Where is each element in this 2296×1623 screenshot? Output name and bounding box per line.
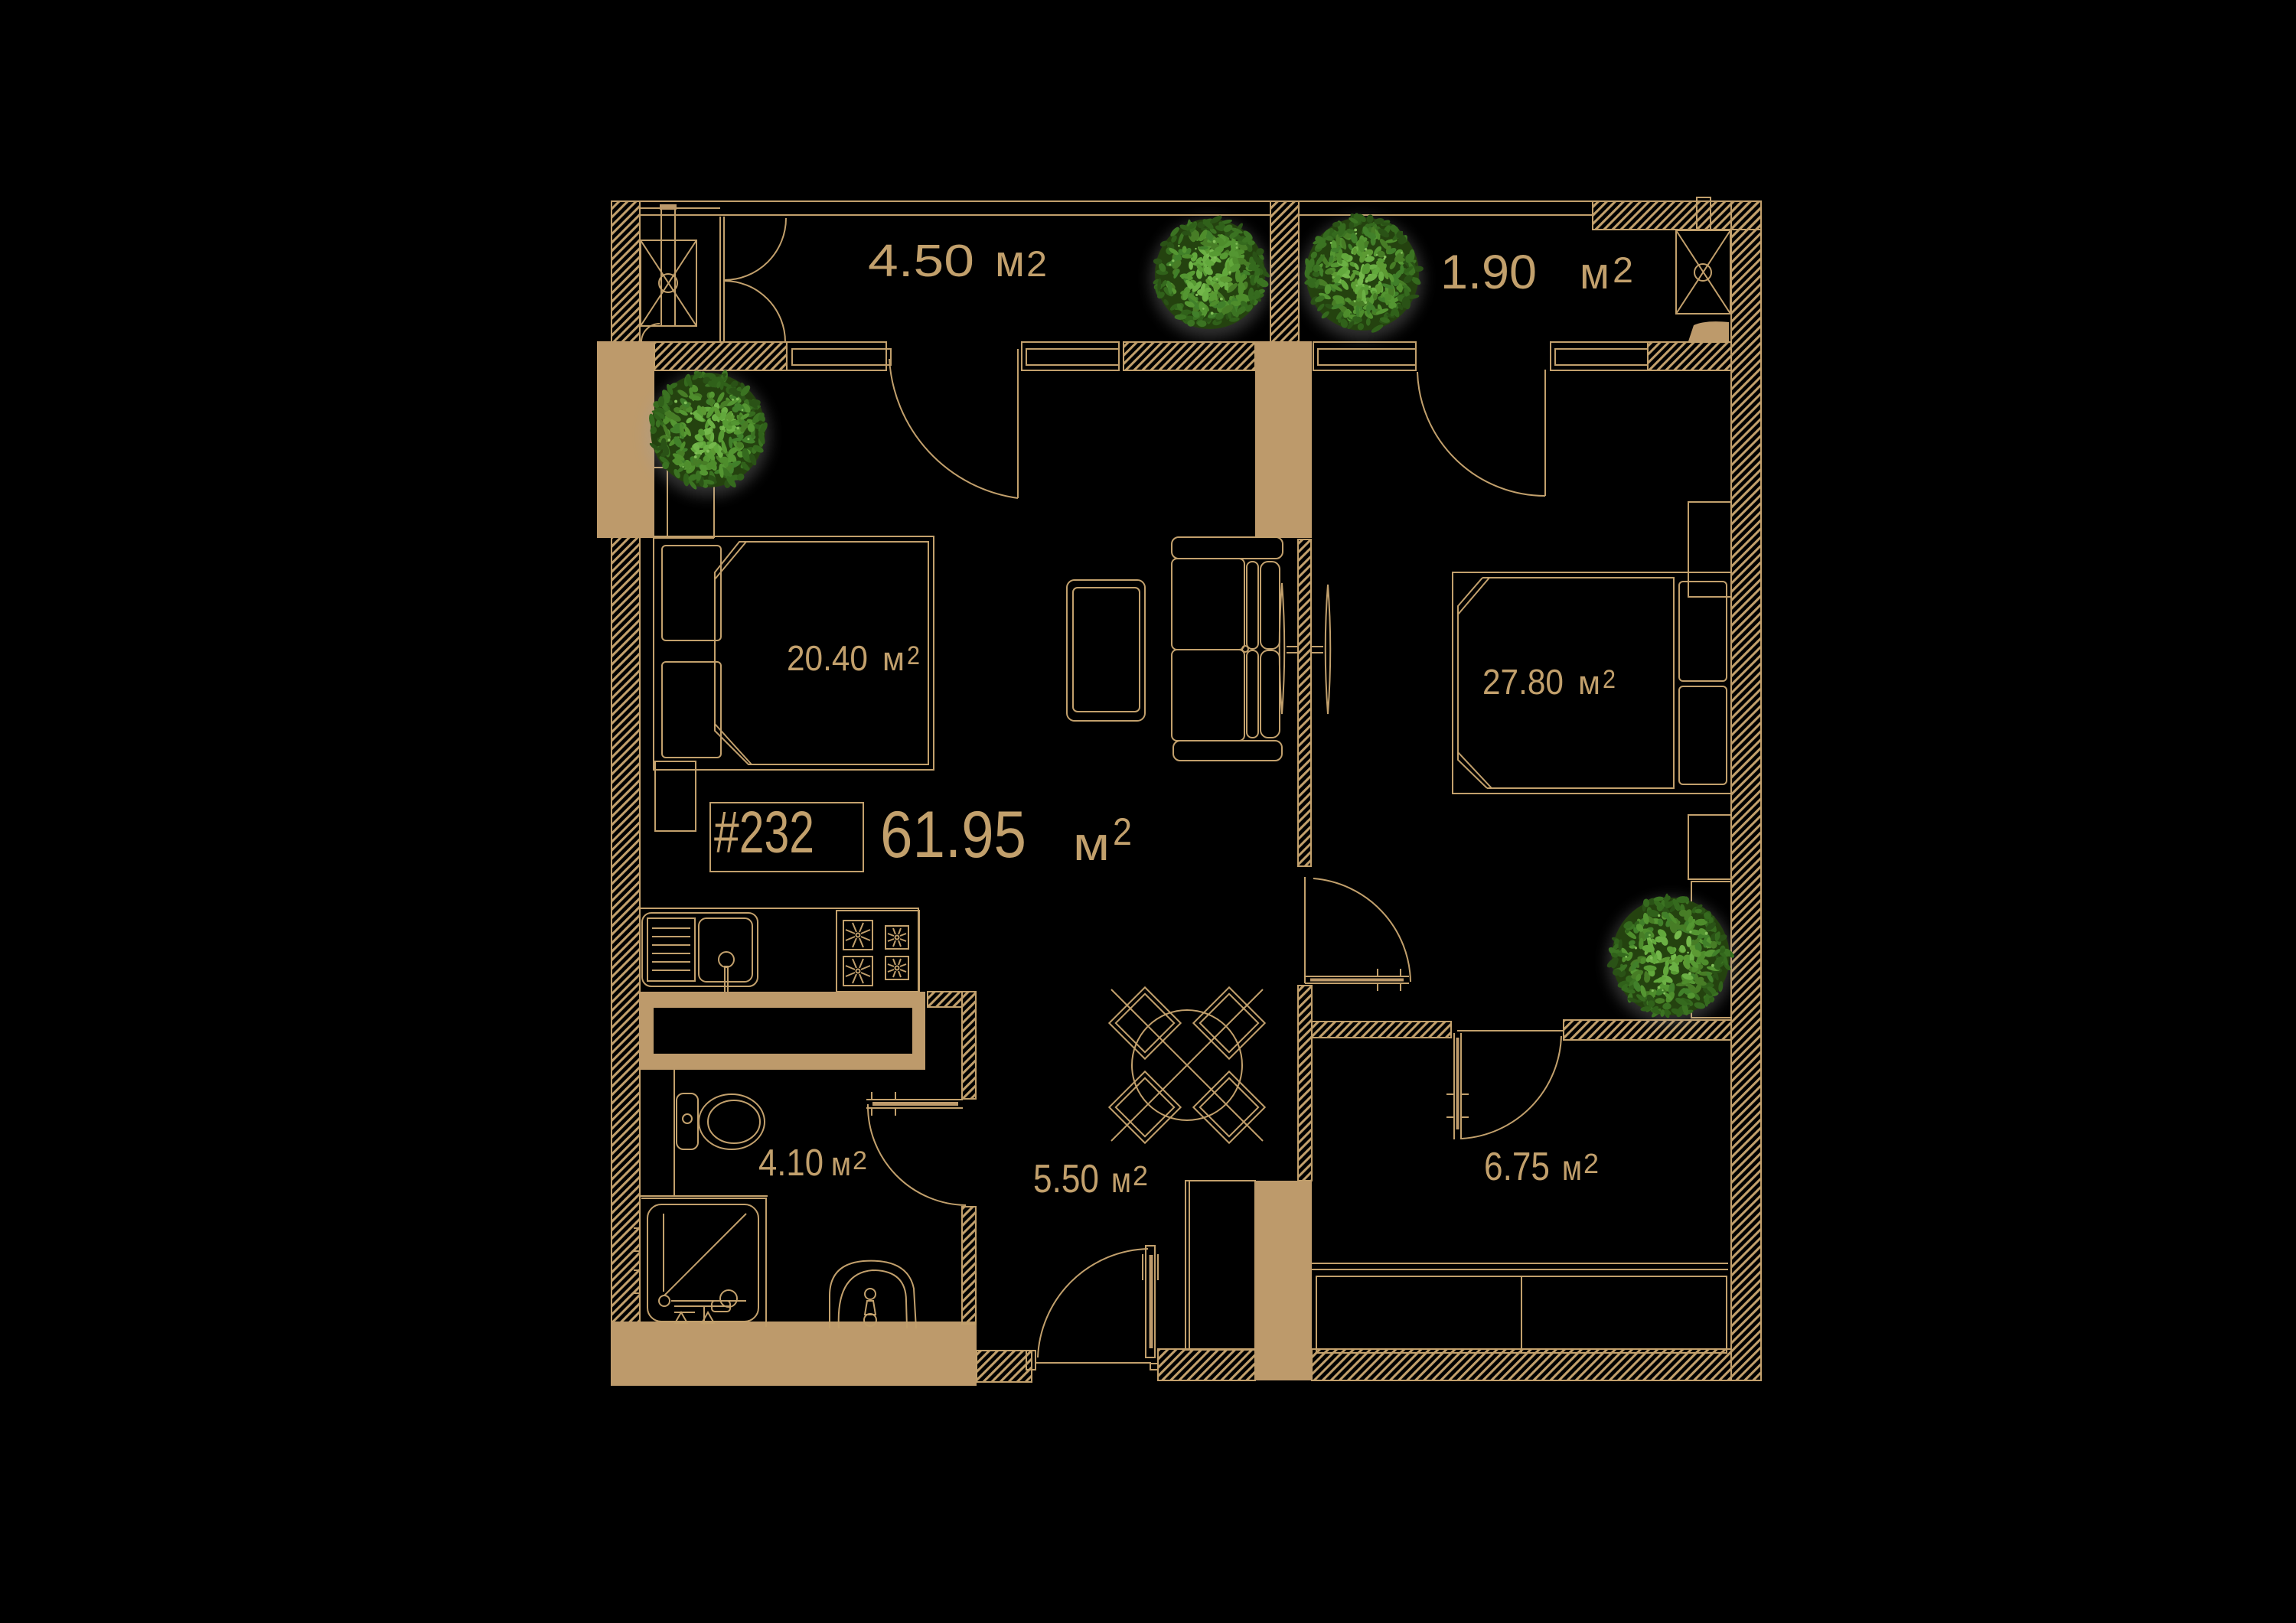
svg-text:2: 2 (1026, 243, 1047, 284)
svg-text:м: м (1111, 1160, 1131, 1200)
svg-text:2: 2 (1603, 665, 1616, 694)
svg-text:м: м (995, 236, 1025, 286)
svg-text:м: м (1578, 664, 1600, 702)
svg-text:6.75: 6.75 (1484, 1145, 1550, 1189)
svg-text:м: м (831, 1146, 851, 1183)
svg-text:2: 2 (1613, 249, 1633, 290)
svg-text:1.90: 1.90 (1440, 246, 1537, 299)
svg-text:27.80: 27.80 (1482, 662, 1564, 702)
svg-text:20.40: 20.40 (787, 638, 868, 678)
svg-text:м: м (1562, 1148, 1582, 1188)
svg-text:#232: #232 (714, 800, 814, 865)
svg-text:м: м (1073, 818, 1110, 871)
svg-text:м: м (1580, 249, 1609, 298)
svg-text:2: 2 (853, 1146, 867, 1175)
svg-text:м: м (882, 640, 905, 678)
svg-text:5.50: 5.50 (1033, 1157, 1099, 1201)
svg-text:2: 2 (1133, 1160, 1148, 1191)
svg-text:4.10: 4.10 (758, 1142, 823, 1184)
svg-text:61.95: 61.95 (880, 798, 1026, 872)
svg-text:2: 2 (907, 641, 920, 670)
svg-text:2: 2 (1113, 810, 1132, 853)
svg-text:2: 2 (1583, 1148, 1599, 1179)
svg-text:4.50: 4.50 (868, 236, 974, 286)
